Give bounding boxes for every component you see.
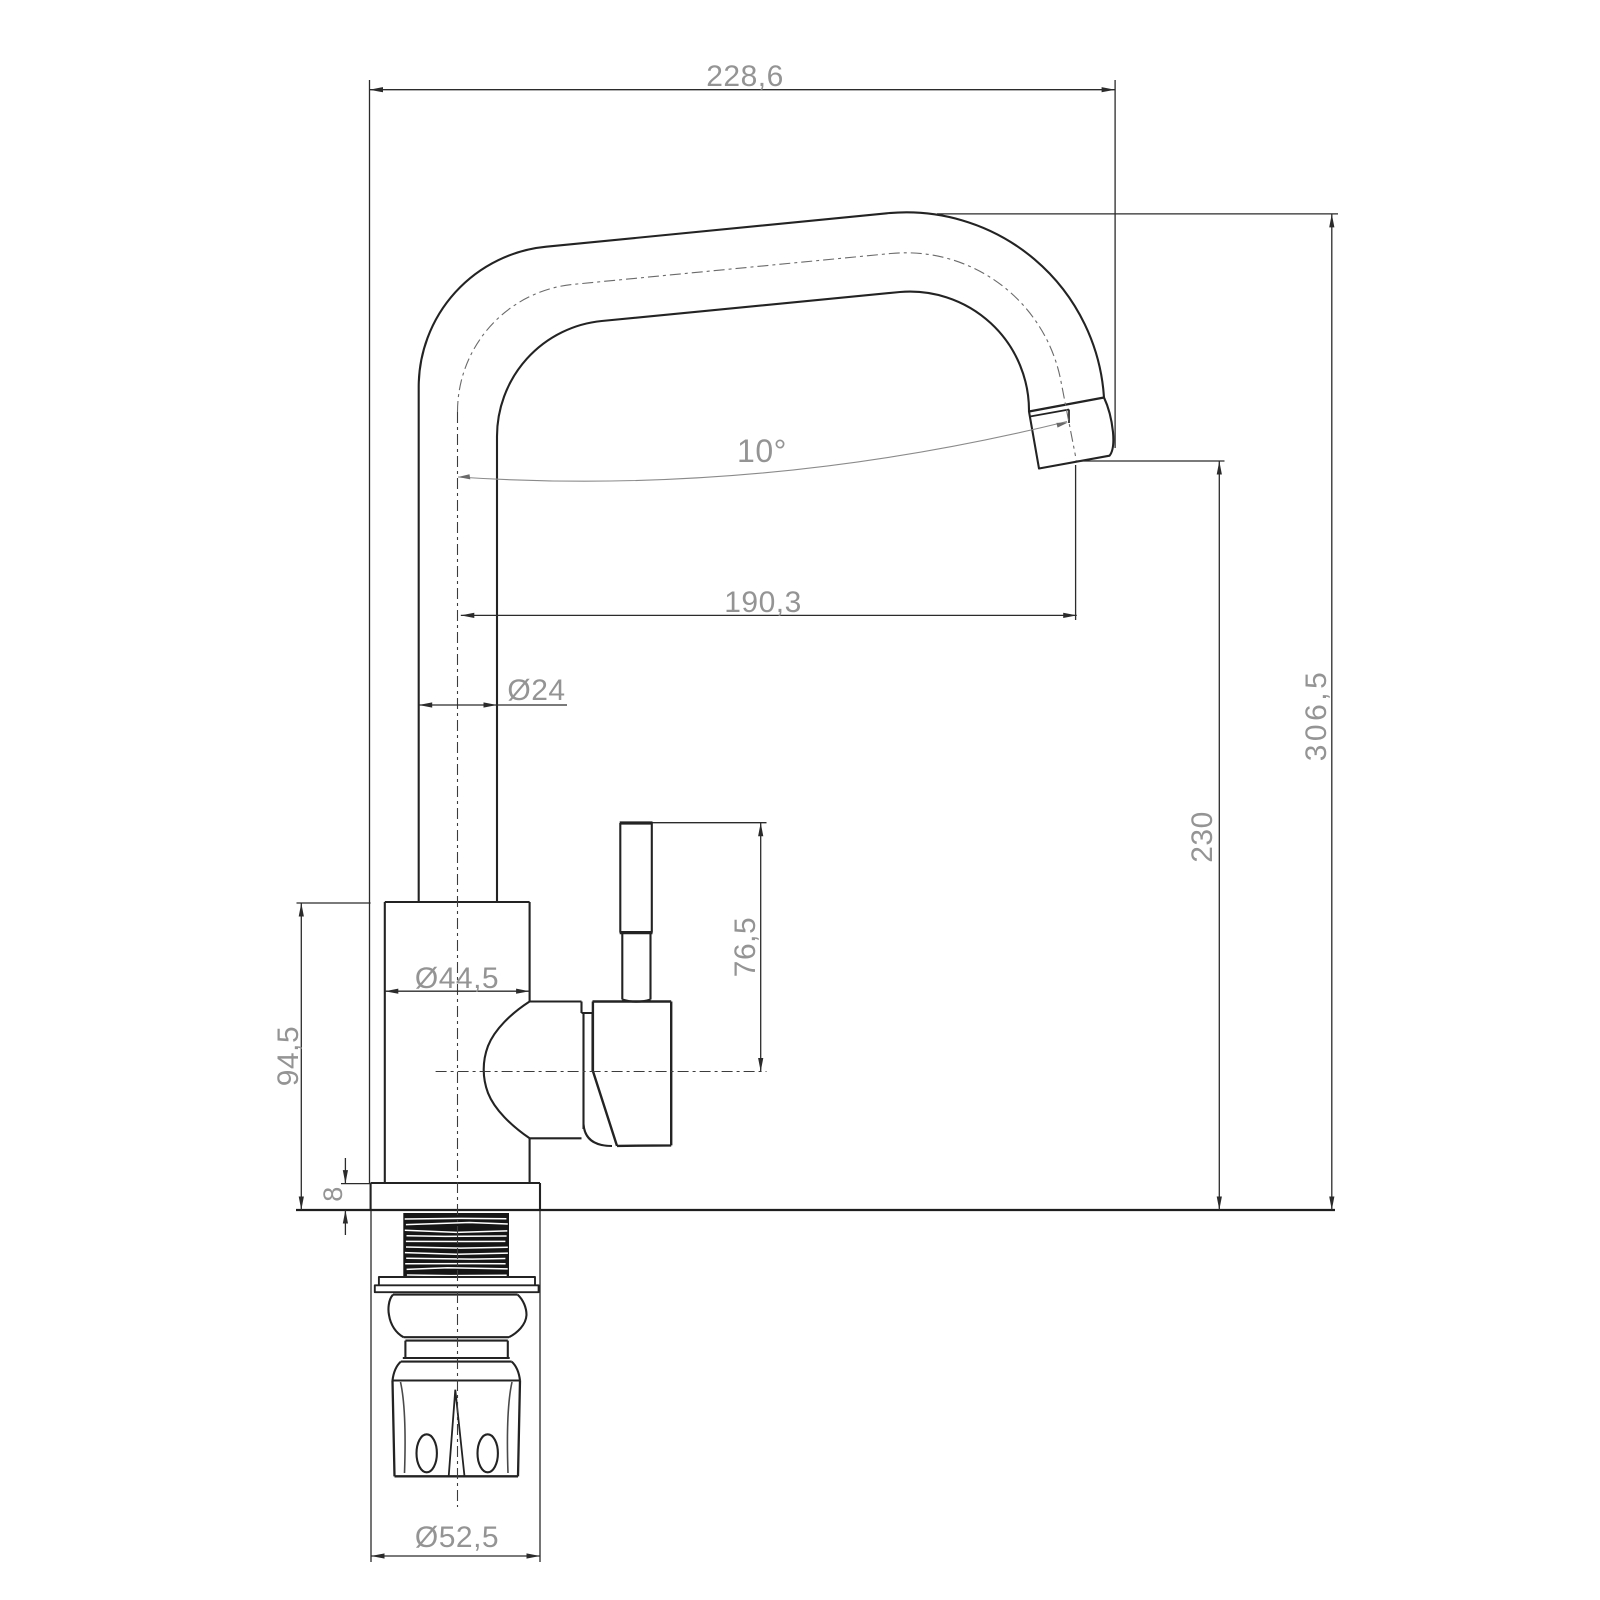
svg-text:Ø52,5: Ø52,5 (415, 1521, 499, 1554)
svg-text:230: 230 (1186, 811, 1219, 863)
svg-text:306,5: 306,5 (1300, 669, 1333, 762)
svg-text:94,5: 94,5 (272, 1026, 305, 1086)
svg-text:8: 8 (318, 1186, 348, 1202)
svg-text:228,6: 228,6 (706, 60, 784, 93)
svg-text:10°: 10° (737, 433, 787, 469)
svg-text:76,5: 76,5 (729, 917, 762, 977)
svg-text:Ø44,5: Ø44,5 (415, 962, 499, 995)
svg-text:Ø24: Ø24 (507, 674, 565, 707)
svg-text:190,3: 190,3 (724, 586, 802, 619)
